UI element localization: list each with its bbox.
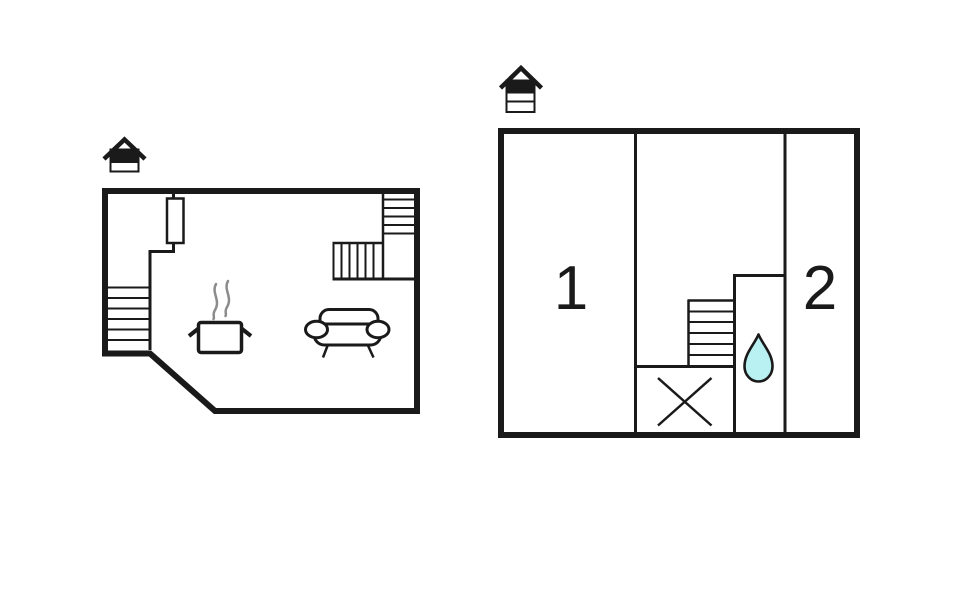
door-icon [167, 199, 184, 244]
staircase-upper-right-icon [333, 194, 415, 279]
crossed-box-icon [637, 367, 735, 426]
sofa-icon [306, 310, 390, 358]
outer-wall-outline [105, 191, 417, 411]
room-label-1: 1 [521, 257, 621, 320]
partition-walls [636, 134, 786, 435]
sofa-armrest-left [306, 321, 328, 338]
staircase-lower-left-icon [106, 288, 149, 341]
floor-plan-right [501, 68, 858, 435]
staircase-icon [688, 300, 735, 365]
stove-icon [189, 281, 251, 353]
floor-plan-left [104, 140, 417, 412]
water-drop-icon [745, 335, 773, 382]
pot-body [199, 323, 242, 353]
room-label-2: 2 [770, 257, 870, 320]
sofa-armrest-right [367, 321, 389, 338]
house-level-indicator-icon [501, 68, 542, 112]
house-level-indicator-icon [104, 140, 145, 172]
steam-lines [214, 281, 229, 319]
floorplan-canvas: 1 2 [0, 0, 960, 611]
house-highlighted-floor [507, 81, 535, 93]
